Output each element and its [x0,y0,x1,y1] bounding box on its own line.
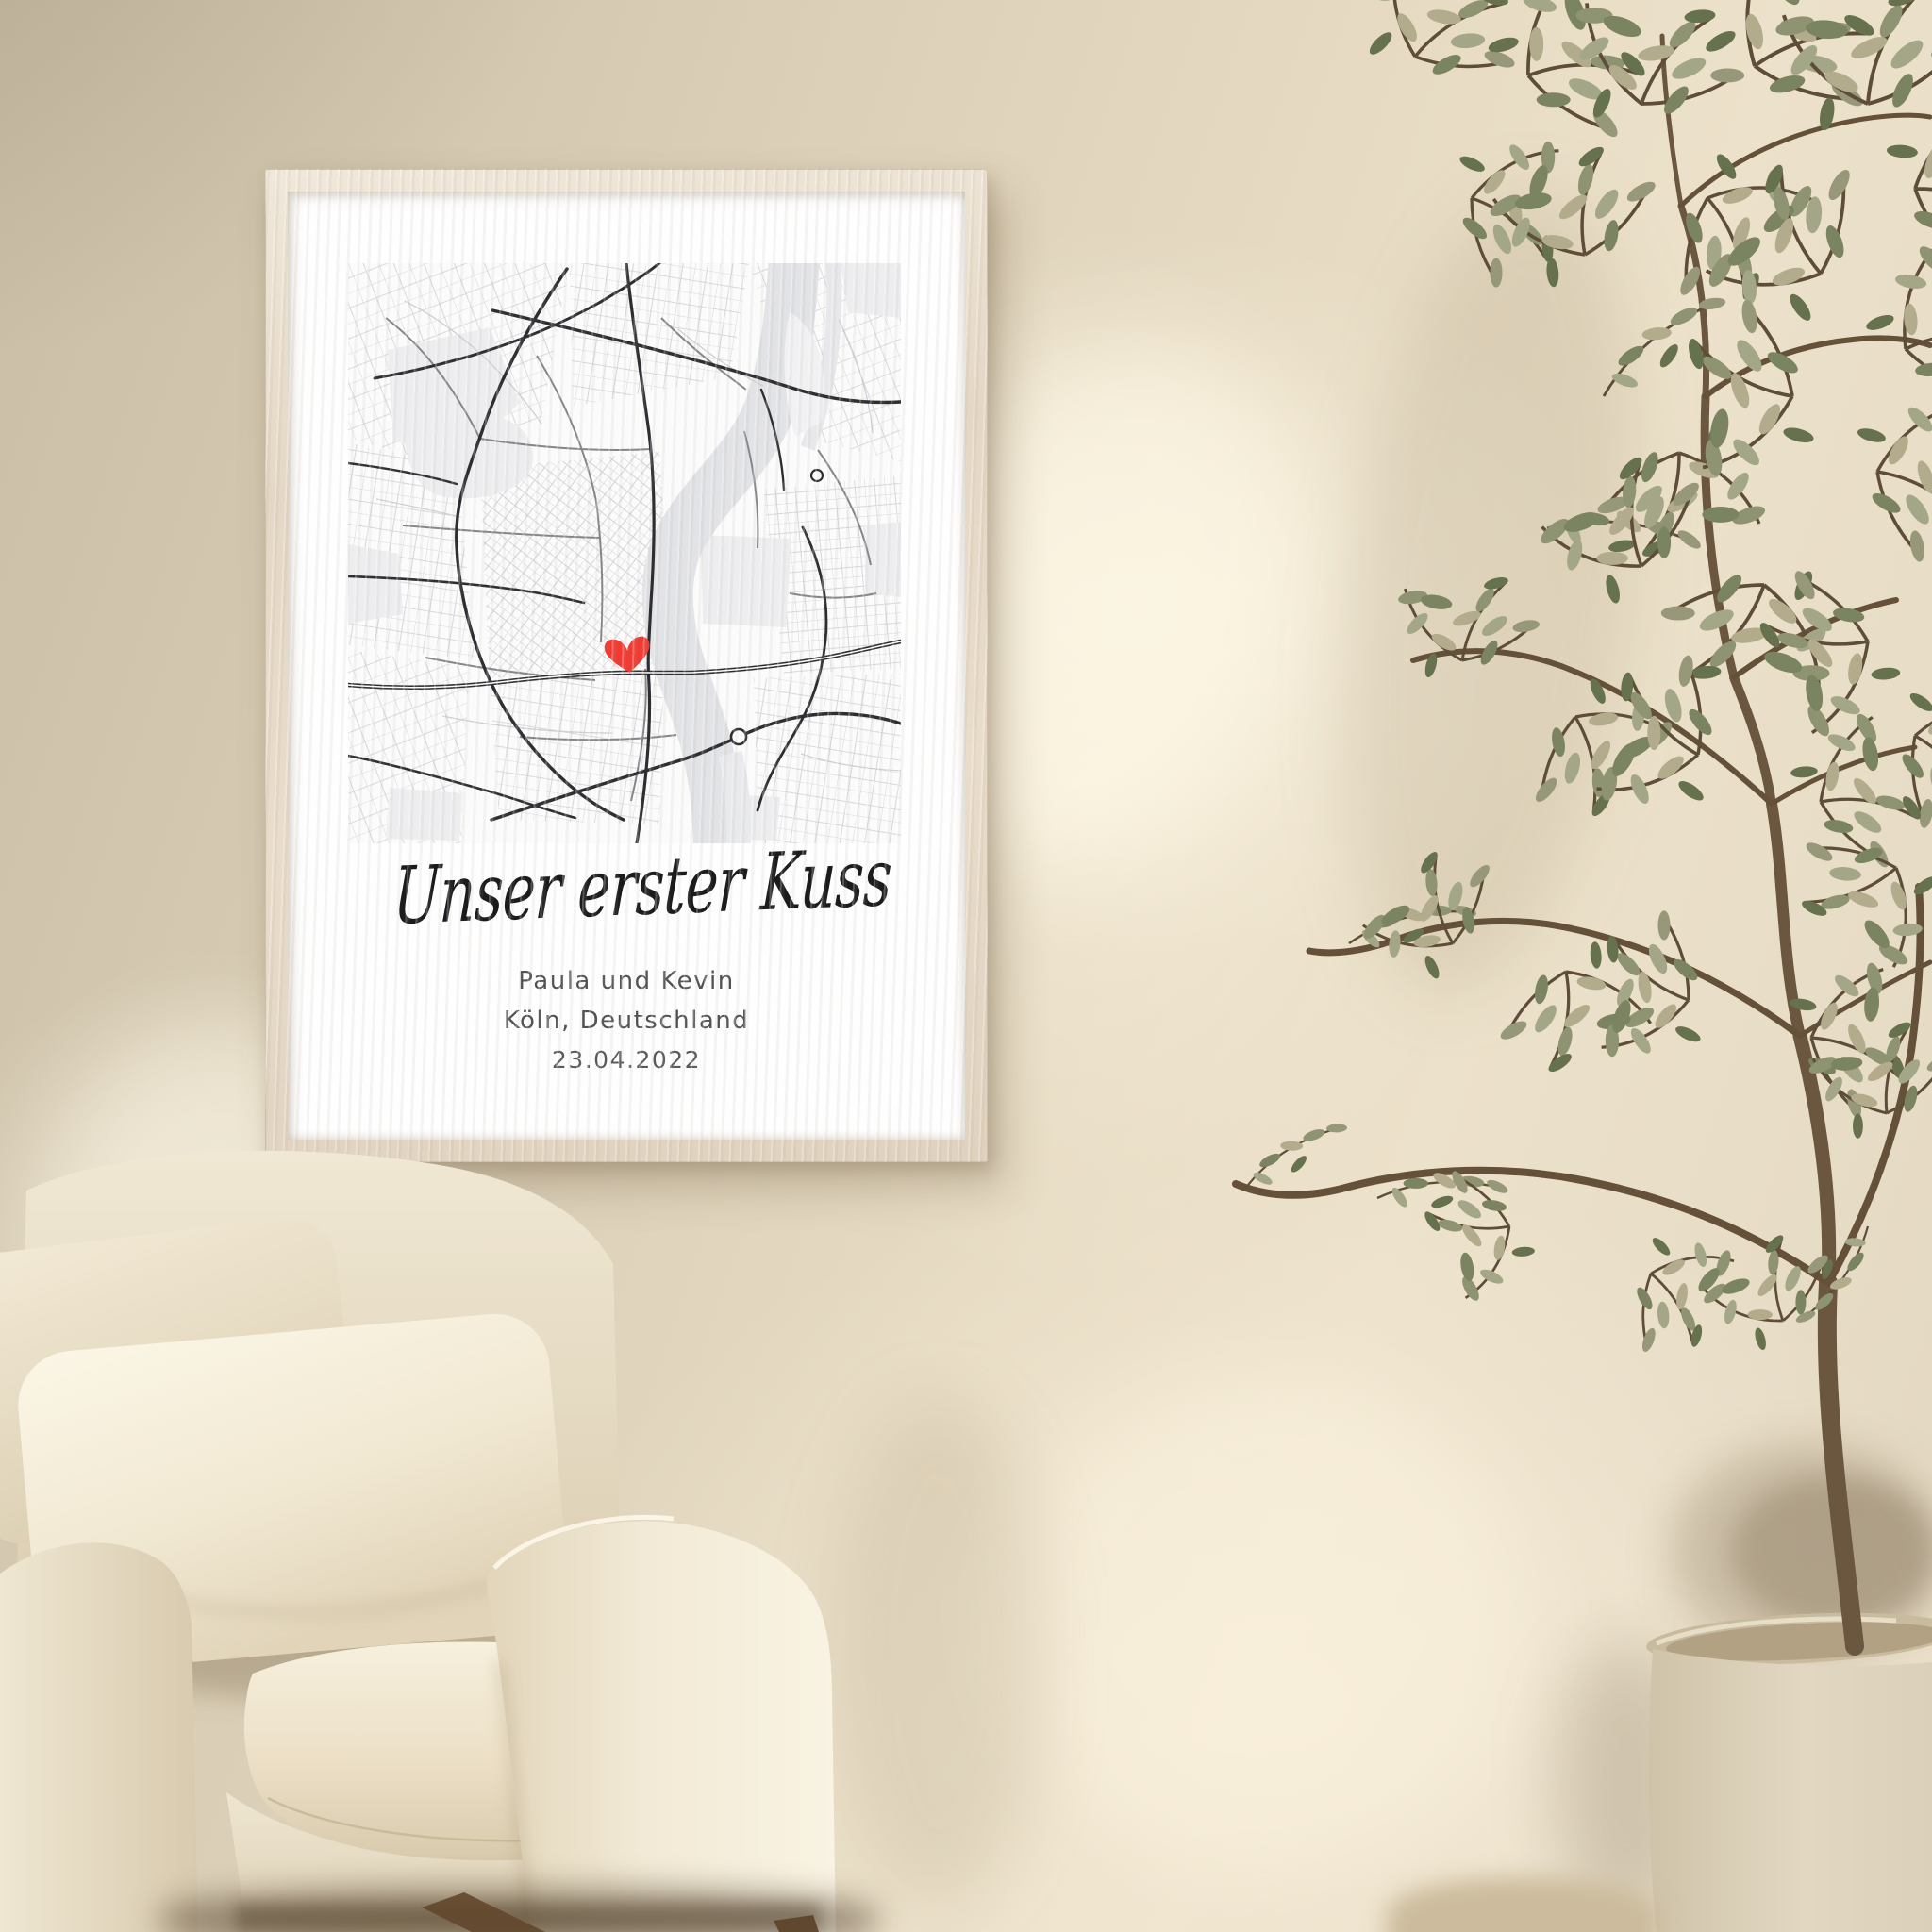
leaf-cluster [1554,0,1752,143]
left-armrest [0,1542,198,1932]
living-room-scene: Unser erster Kuss Paula und Kevin Köln, … [0,0,1932,1932]
map-roundabout [731,729,746,744]
leaf-cluster [1691,1210,1837,1363]
leaf-cluster [1238,1122,1354,1191]
leaf-cluster [1834,376,1932,571]
floor-shadow [160,1889,877,1932]
poster-paper: Unser erster Kuss Paula und Kevin Köln, … [288,192,965,1140]
plant-pot [1649,1649,1932,1932]
armchair [0,1132,868,1932]
poster-date: 23.04.2022 [288,1041,965,1080]
poster-names: Paula und Kevin [288,961,965,1001]
leaf-cluster [1786,832,1932,973]
leaf-cluster [1640,291,1839,498]
poster-title-text: Unser erster Kuss [391,831,893,942]
poster-location: Köln, Deutschland [288,1001,965,1041]
map-roundabout [811,470,823,481]
leaf-cluster [1852,233,1932,412]
poster-frame: Unser erster Kuss Paula und Kevin Köln, … [265,169,988,1162]
leaf-cluster [1586,293,1742,399]
tree-branches [1236,115,1930,1283]
city-map [348,263,901,843]
leaf-cluster [1354,830,1500,989]
leaf-cluster [1381,539,1547,697]
leaf-cluster [1524,668,1683,840]
leaf-cluster [1366,0,1517,78]
right-armrest [487,1521,836,1932]
poster-subtitle-block: Paula und Kevin Köln, Deutschland 23.04.… [288,961,965,1080]
poster-title: Unser erster Kuss [288,841,965,933]
leaf-cluster [1472,0,1679,150]
potted-tree [1019,0,1932,1932]
